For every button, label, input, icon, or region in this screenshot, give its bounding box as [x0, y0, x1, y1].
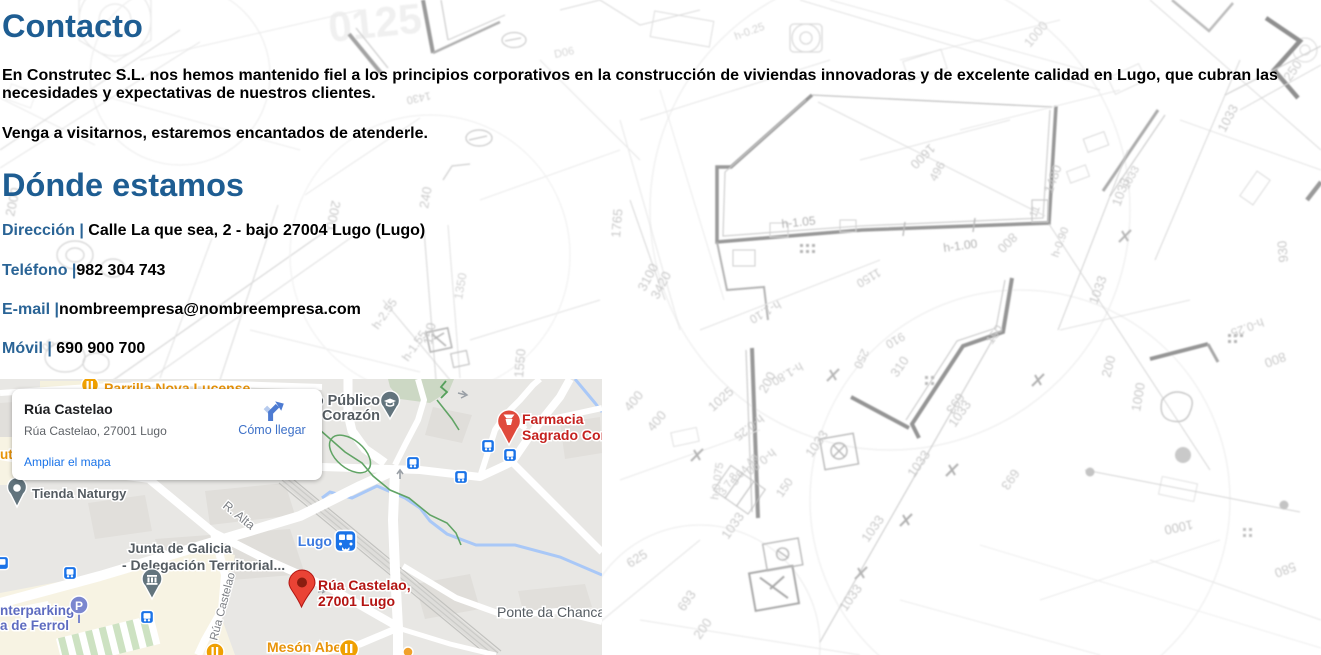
- svg-text:h-1.80: h-1.80: [769, 359, 806, 388]
- svg-text:11: 11: [1028, 204, 1043, 219]
- svg-text:1033: 1033: [1086, 274, 1110, 306]
- svg-text:Farmacia: Farmacia: [522, 411, 584, 427]
- svg-text:Junta de Galicia: Junta de Galicia: [128, 541, 232, 556]
- svg-text:693: 693: [674, 587, 699, 613]
- svg-text:0125: 0125: [326, 0, 424, 51]
- svg-text:Tienda Naturgy: Tienda Naturgy: [32, 486, 127, 501]
- svg-text:693: 693: [998, 466, 1023, 492]
- svg-text:D06: D06: [553, 45, 575, 61]
- svg-text:800: 800: [1263, 349, 1289, 371]
- svg-text:250: 250: [851, 347, 872, 371]
- svg-text:Sagrado Cora: Sagrado Cora: [522, 427, 602, 443]
- svg-text:240: 240: [416, 186, 435, 210]
- svg-text:910: 910: [883, 329, 908, 351]
- svg-text:Mesón Abel: Mesón Abel: [267, 639, 345, 655]
- svg-text:Lugo: Lugo: [298, 533, 332, 549]
- svg-text:400: 400: [621, 388, 646, 414]
- svg-text:1150: 1150: [854, 265, 884, 290]
- svg-text:1033: 1033: [802, 427, 831, 459]
- svg-text:h-1.55: h-1.55: [399, 328, 430, 364]
- svg-text:o Público: o Público: [315, 393, 380, 409]
- svg-text:580: 580: [1273, 559, 1299, 581]
- svg-text:Rúa Castelao,: Rúa Castelao,: [318, 577, 411, 593]
- svg-text:400: 400: [644, 408, 669, 434]
- svg-text:1033: 1033: [1120, 164, 1142, 191]
- svg-text:h-0.25: h-0.25: [1229, 315, 1266, 340]
- svg-text:nterparking: nterparking: [0, 603, 74, 618]
- svg-text:1025: 1025: [705, 384, 737, 414]
- svg-text:a de Ferrol: a de Ferrol: [0, 618, 69, 633]
- svg-text:Ponte da Chanca: Ponte da Chanca: [497, 604, 602, 620]
- svg-text:h-2.55: h-2.55: [369, 296, 400, 332]
- svg-text:1350: 1350: [451, 271, 469, 300]
- svg-text:150: 150: [773, 475, 796, 500]
- svg-text:h-1.00: h-1.00: [942, 236, 978, 255]
- svg-text:1000: 1000: [1128, 381, 1148, 412]
- svg-text:496: 496: [926, 159, 948, 184]
- svg-text:1033: 1033: [858, 512, 887, 544]
- svg-text:P: P: [75, 599, 83, 613]
- svg-text:Corazón: Corazón: [322, 408, 380, 424]
- svg-text:1033: 1033: [1214, 102, 1241, 135]
- svg-text:1480: 1480: [1041, 163, 1065, 195]
- svg-text:800: 800: [995, 230, 1021, 256]
- svg-text:1765: 1765: [608, 208, 625, 238]
- svg-text:1033: 1033: [836, 581, 865, 613]
- svg-text:200: 200: [1098, 354, 1118, 379]
- svg-text:200: 200: [690, 615, 715, 641]
- svg-text:1033: 1033: [718, 509, 747, 541]
- svg-text:930: 930: [1274, 240, 1291, 263]
- svg-text:310: 310: [887, 353, 912, 379]
- svg-text:1550: 1550: [511, 348, 528, 378]
- svg-text:h-1.05: h-1.05: [781, 213, 817, 231]
- svg-text:1000: 1000: [1163, 517, 1194, 538]
- svg-text:27001 Lugo: 27001 Lugo: [318, 593, 395, 609]
